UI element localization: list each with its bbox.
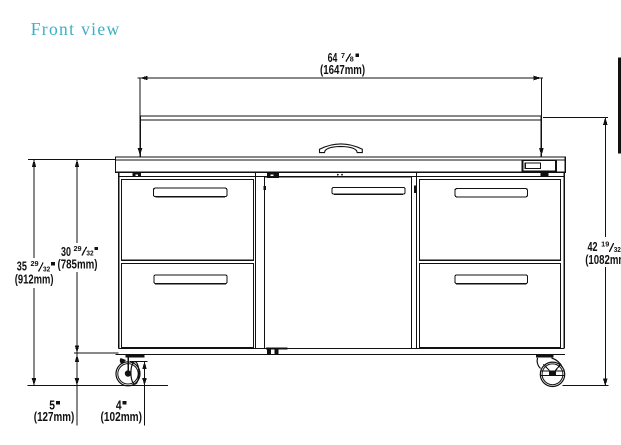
svg-text:19: 19 <box>601 239 609 248</box>
svg-text:29: 29 <box>74 244 82 253</box>
svg-text:7: 7 <box>341 51 345 60</box>
svg-text:29: 29 <box>31 259 39 268</box>
svg-text:(127mm): (127mm) <box>34 409 75 424</box>
svg-text:(1647mm): (1647mm) <box>320 62 365 77</box>
svg-text:(785mm): (785mm) <box>58 257 98 272</box>
svg-text:(912mm): (912mm) <box>15 272 54 287</box>
svg-text:(1082mm): (1082mm) <box>585 252 621 267</box>
svg-text:(102mm): (102mm) <box>101 409 143 424</box>
svg-text:Front view: Front view <box>31 19 121 39</box>
